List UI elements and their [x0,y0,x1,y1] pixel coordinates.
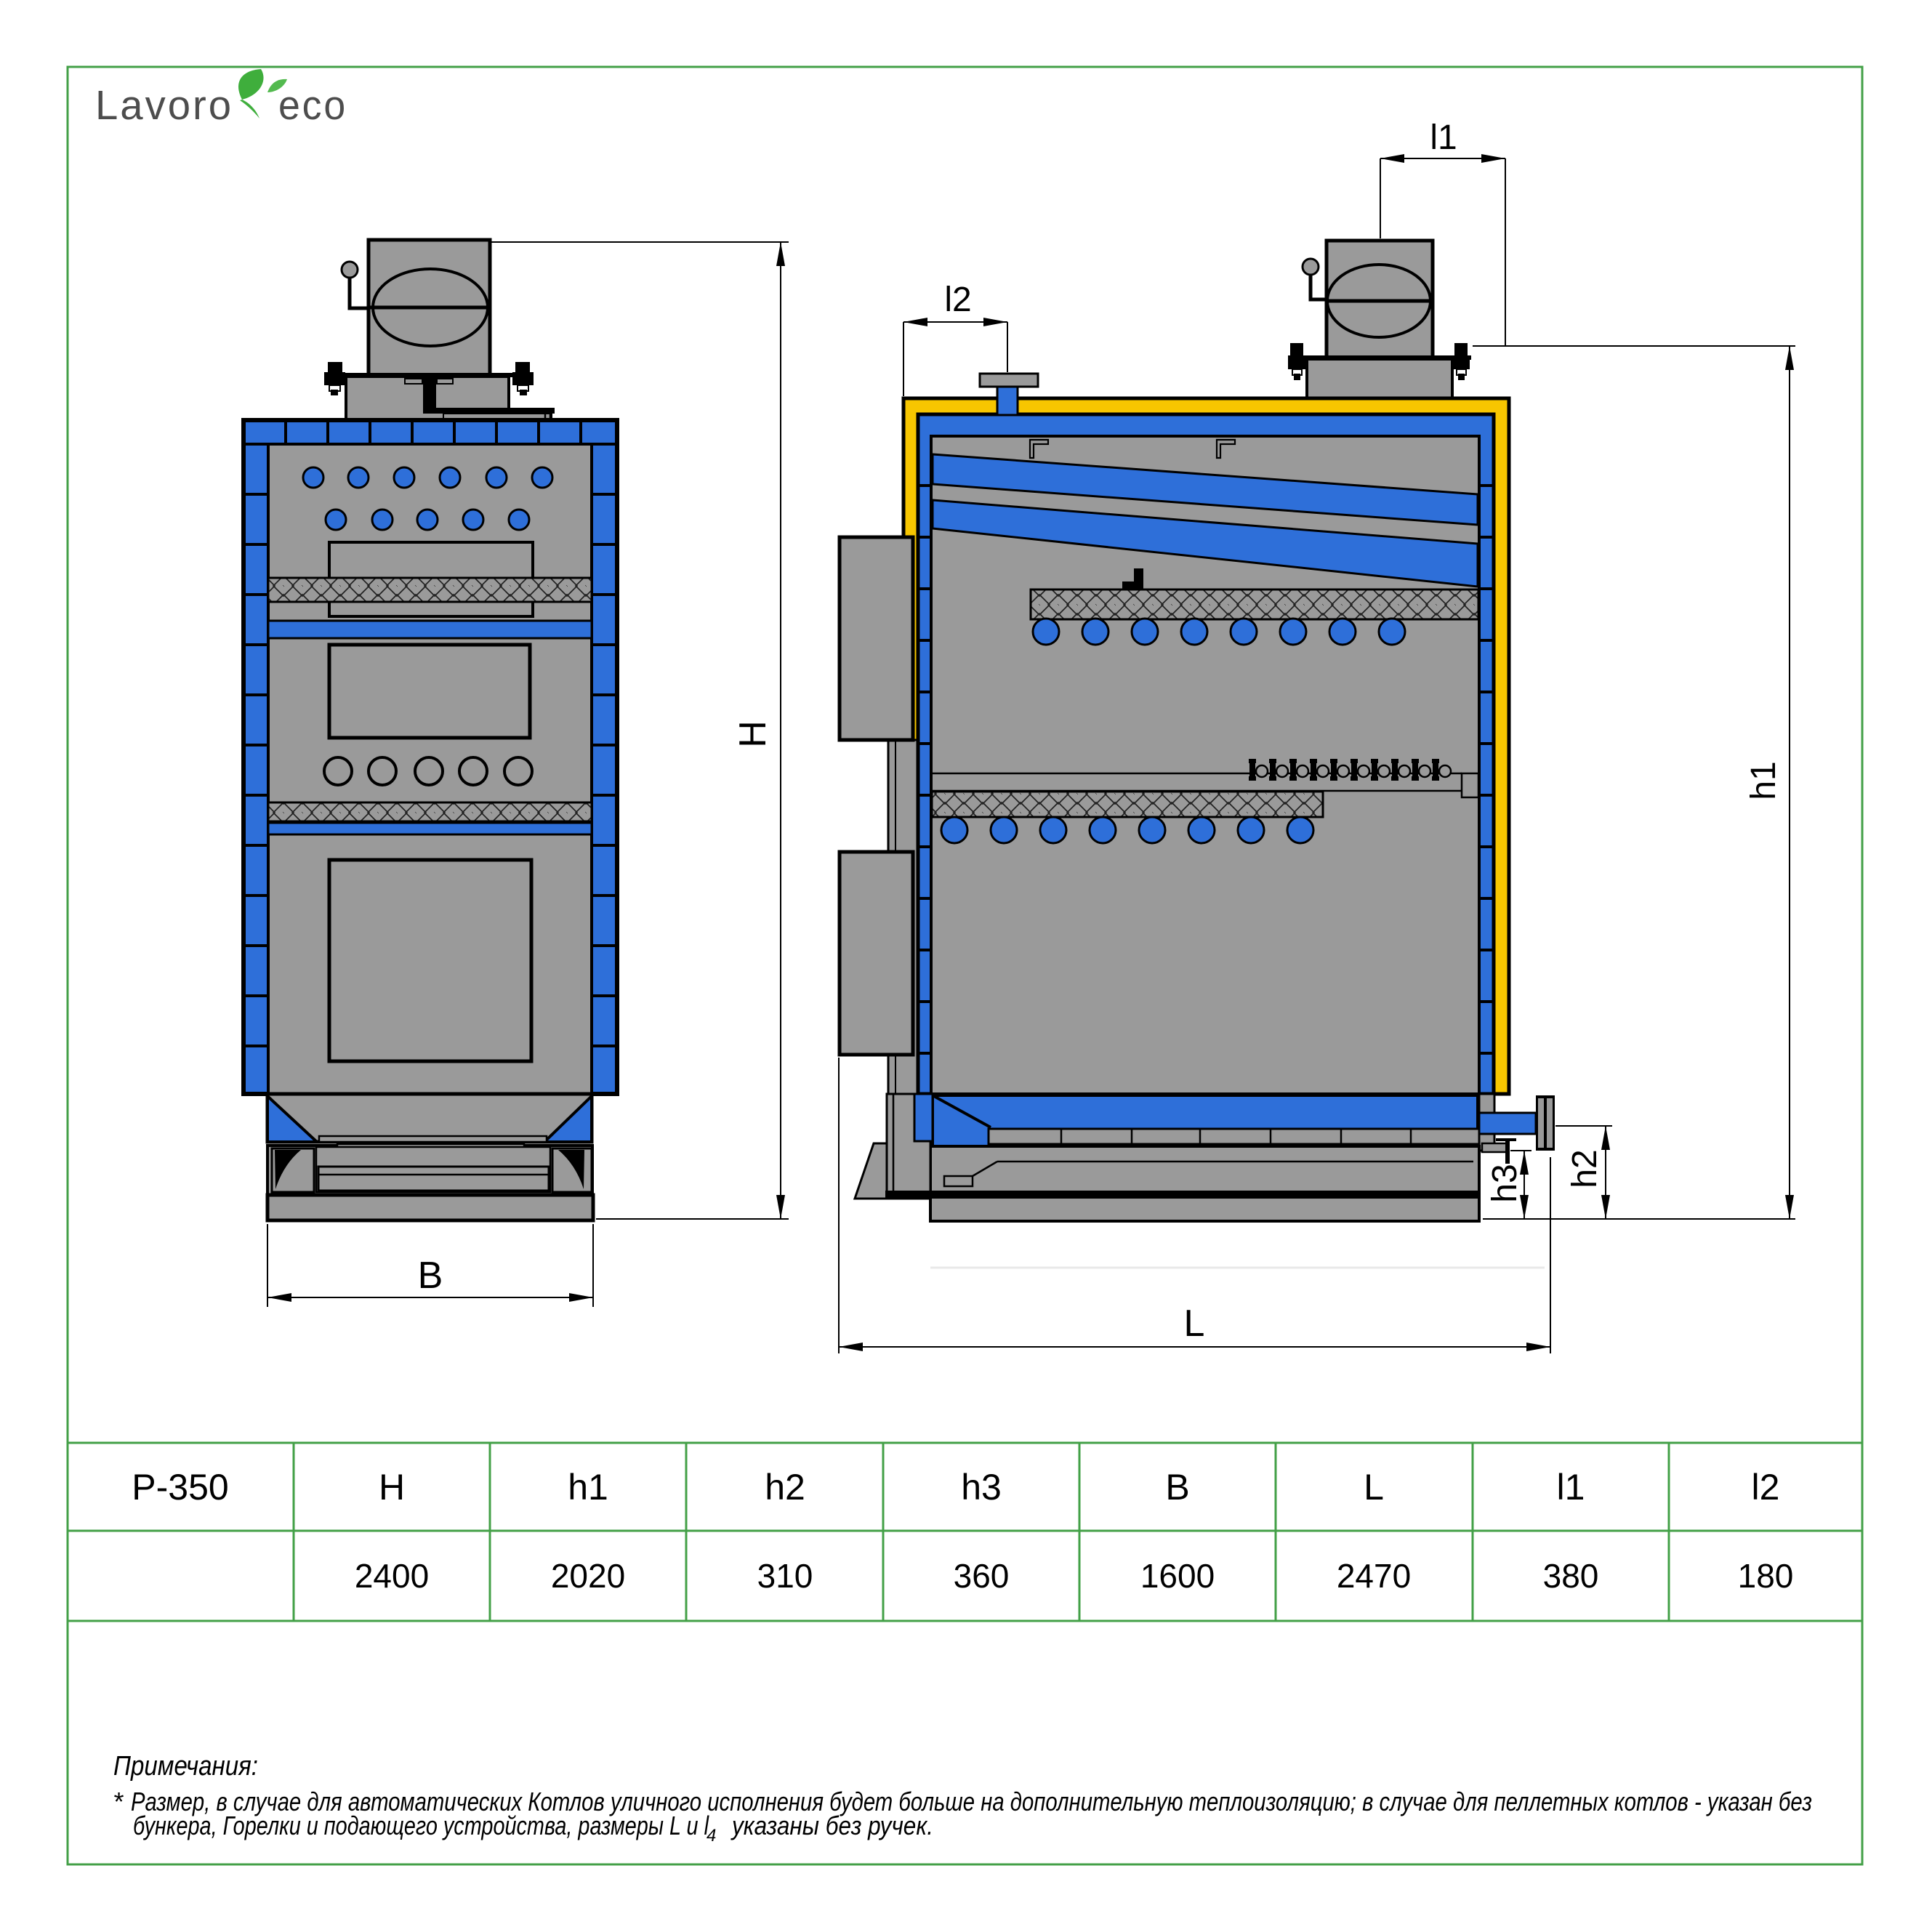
svg-text:h2: h2 [1566,1149,1604,1188]
svg-text:H: H [379,1467,405,1508]
svg-text:1600: 1600 [1140,1557,1215,1595]
svg-text:l1: l1 [1430,118,1457,157]
svg-text:бункера, Горелки и подающего у: бункера, Горелки и подающего устройства,… [133,1811,709,1840]
svg-text:h2: h2 [765,1467,805,1508]
svg-text:B: B [418,1255,443,1297]
svg-text:180: 180 [1738,1557,1794,1595]
svg-text:h1: h1 [1744,761,1783,800]
svg-text:*: * [113,1787,124,1816]
svg-text:L: L [1364,1467,1384,1508]
svg-text:Lavoro: Lavoro [95,82,233,129]
svg-text:360: 360 [954,1557,1010,1595]
svg-text:L: L [1184,1303,1205,1345]
svg-text:P-350: P-350 [132,1467,228,1508]
svg-text:380: 380 [1543,1557,1599,1595]
svg-text:h3: h3 [1486,1164,1524,1202]
svg-text:l1: l1 [1557,1467,1585,1508]
svg-text:B: B [1165,1467,1189,1508]
svg-text:4: 4 [707,1826,716,1846]
svg-text:Примечания:: Примечания: [113,1751,258,1782]
svg-text:l2: l2 [1752,1467,1780,1508]
svg-text:указаны без ручек.: указаны без ручек. [730,1811,933,1840]
svg-text:2470: 2470 [1337,1557,1411,1595]
svg-text:2020: 2020 [551,1557,625,1595]
svg-text:310: 310 [757,1557,813,1595]
svg-text:h1: h1 [568,1467,608,1508]
svg-text:h3: h3 [961,1467,1002,1508]
svg-text:2400: 2400 [355,1557,429,1595]
svg-text:l2: l2 [944,281,971,319]
svg-text:eco: eco [278,82,347,129]
svg-text:H: H [732,720,774,748]
